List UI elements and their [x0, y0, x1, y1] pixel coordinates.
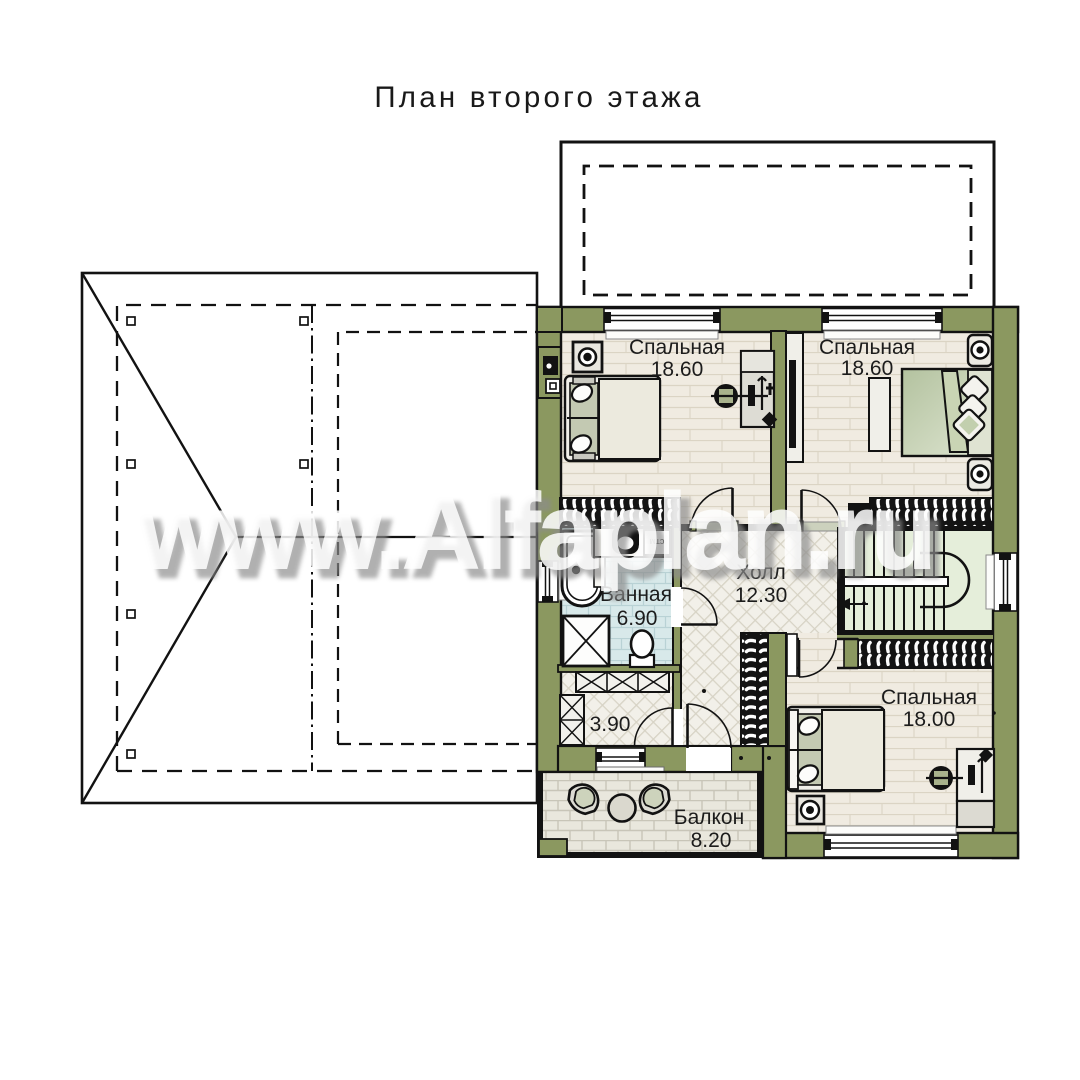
svg-text:Спальная: Спальная [819, 336, 915, 359]
svg-text:18.60: 18.60 [651, 358, 704, 381]
svg-text:Балкон: Балкон [674, 806, 744, 829]
svg-text:8.20: 8.20 [691, 829, 732, 852]
svg-text:6.90: 6.90 [617, 607, 658, 630]
svg-text:План второго этажа: План второго этажа [374, 81, 703, 114]
svg-text:Спальная: Спальная [881, 686, 977, 709]
svg-text:www.Alfaplan.ru: www.Alfaplan.ru [136, 471, 934, 591]
svg-text:Спальная: Спальная [629, 336, 725, 359]
svg-text:18.60: 18.60 [841, 357, 894, 380]
svg-text:3.90: 3.90 [590, 713, 631, 736]
svg-text:18.00: 18.00 [903, 708, 956, 731]
